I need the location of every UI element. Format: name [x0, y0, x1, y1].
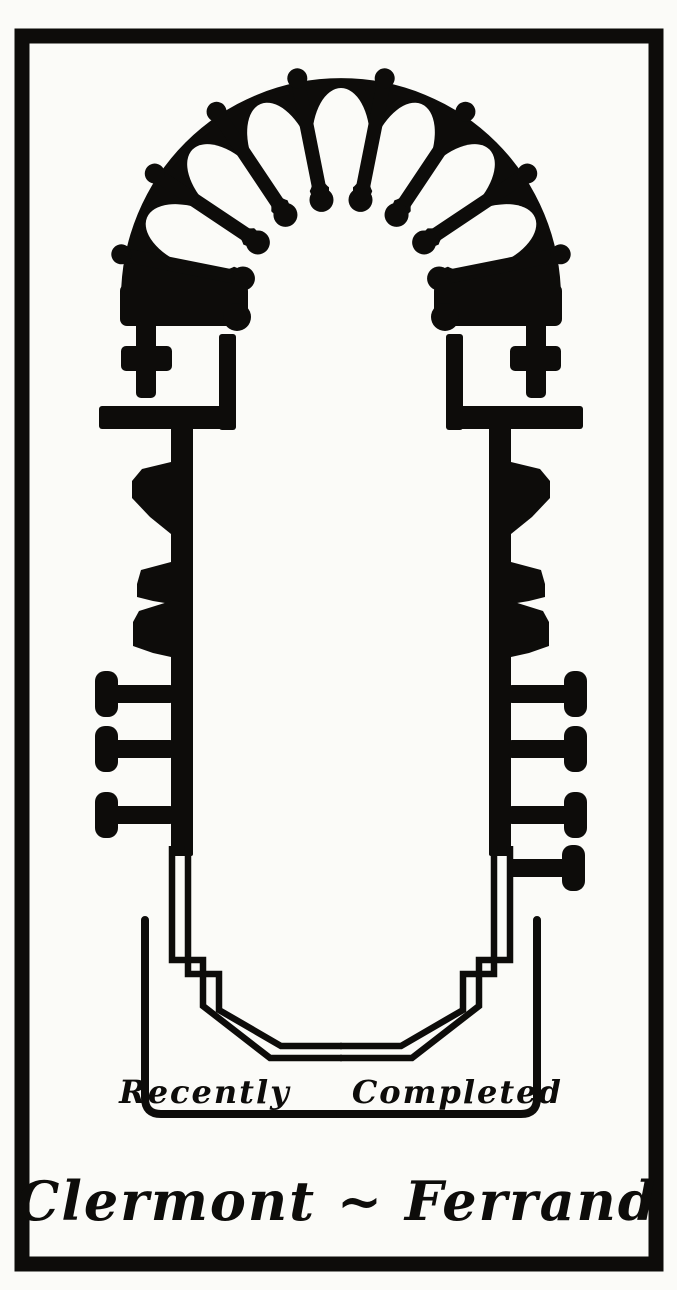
plan-caption: Clermont ~ Ferrand	[16, 1169, 657, 1233]
buttress-pier	[508, 845, 585, 891]
scanned-plan-page: Recently Completed Clermont ~ Ferrand	[0, 0, 677, 1290]
plan-right-half-mirrored	[340, 284, 587, 1114]
cathedral-plan-figure: Recently Completed Clermont ~ Ferrand	[0, 0, 677, 1290]
recently-completed-label: Recently Completed	[118, 1073, 563, 1111]
plan-left-half	[95, 284, 342, 1114]
apse-chevet	[109, 66, 573, 298]
